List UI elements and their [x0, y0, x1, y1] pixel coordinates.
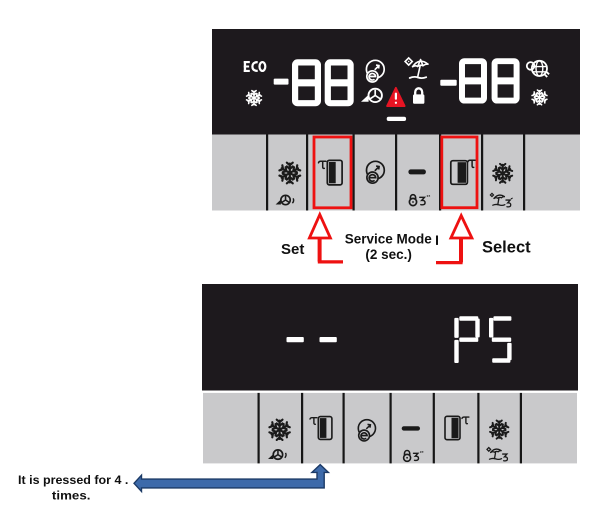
svg-text:times.: times. — [52, 489, 91, 503]
svg-text:Set: Set — [281, 241, 304, 258]
svg-text:(2 sec.): (2 sec.) — [365, 247, 412, 262]
svg-text:Select: Select — [482, 238, 531, 256]
svg-text:Service Mode: Service Mode — [345, 232, 433, 247]
svg-text:It is pressed for 4 .: It is pressed for 4 . — [18, 473, 128, 487]
